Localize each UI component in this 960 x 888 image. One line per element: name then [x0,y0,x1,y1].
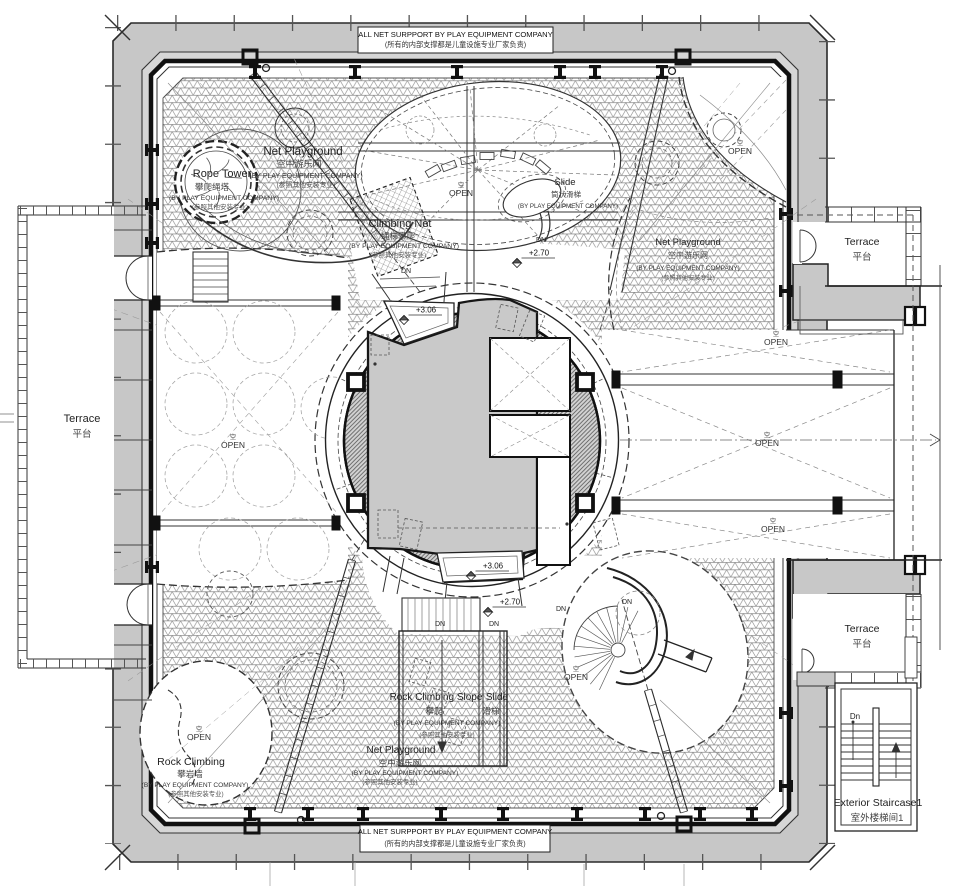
svg-text:(BY PLAY EQUIPMENT COMPANY): (BY PLAY EQUIPMENT COMPANY) [636,265,739,272]
svg-text:滑梯: 滑梯 [482,706,500,716]
svg-text:攀岩墙: 攀岩墙 [177,769,203,779]
svg-text:空中游乐网: 空中游乐网 [276,158,321,169]
svg-text:(BY PLAY EQUIPMENT COMPANY): (BY PLAY EQUIPMENT COMPANY) [349,243,459,250]
svg-text:(BY PLAY EQUIPMENT COMPANY): (BY PLAY EQUIPMENT COMPANY) [394,720,501,727]
svg-text:(参照其他安装专业): (参照其他安装专业) [277,180,336,189]
svg-text:DN: DN [489,621,499,628]
svg-text:Net Playground: Net Playground [263,146,342,158]
svg-text:(BY PLAY EQUIPMENT COMPANY): (BY PLAY EQUIPMENT COMPANY) [142,782,249,789]
svg-text:攀爬绳塔: 攀爬绳塔 [195,182,230,192]
svg-text:Net Playground: Net Playground [367,745,436,756]
svg-text:平台: 平台 [72,428,91,440]
svg-text:平台: 平台 [852,251,871,263]
svg-text:(所有的内部支撑都是儿童设施专业厂家负责): (所有的内部支撑都是儿童设施专业厂家负责) [385,40,526,49]
svg-text:OPEN: OPEN [761,524,785,534]
svg-text:DN: DN [536,237,546,244]
svg-text:Rock Climbing: Rock Climbing [157,756,225,768]
svg-text:室外楼梯间1: 室外楼梯间1 [851,812,904,824]
svg-text:OPEN: OPEN [764,337,788,347]
svg-text:DN: DN [435,621,445,628]
svg-text:ALL NET SURPPORT BY PLAY EQUIP: ALL NET SURPPORT BY PLAY EQUIPMENT COMPA… [358,827,552,836]
svg-text:(BY PLAY EQUIPMENT COMPANY): (BY PLAY EQUIPMENT COMPANY) [169,195,279,202]
svg-text:DN: DN [622,599,632,606]
svg-text:Net Playground: Net Playground [655,237,720,248]
svg-text:Terrace: Terrace [844,623,879,635]
svg-text:(参照其他安装专业): (参照其他安装专业) [661,274,715,282]
svg-text:Climbing Net: Climbing Net [369,218,432,230]
svg-text:平台: 平台 [852,638,871,650]
svg-text:绳梯攀爬: 绳梯攀爬 [381,231,416,241]
svg-text:(BY PLAY EQUIPMENT COMPANY): (BY PLAY EQUIPMENT COMPANY) [518,203,618,210]
svg-text:(参照其他安装专业): (参照其他安装专业) [168,789,223,798]
svg-text:(参照其他安装专业): (参照其他安装专业) [370,250,426,259]
svg-text:+3.06: +3.06 [483,562,504,571]
svg-text:Rock Climbing Slope: Rock Climbing Slope [390,692,483,703]
svg-text:Rope Tower: Rope Tower [193,168,252,180]
svg-text:(BY PLAY EQUIPMENT COMPANY): (BY PLAY EQUIPMENT COMPANY) [352,770,459,777]
svg-text:OPEN: OPEN [221,440,245,450]
svg-text:Slide: Slide [554,177,575,188]
svg-text:Dn: Dn [850,712,860,721]
svg-text:筒状滑梯: 筒状滑梯 [551,189,581,199]
svg-text:+2.70: +2.70 [500,598,521,607]
svg-text:Terrace: Terrace [64,413,101,425]
svg-text:+2.70: +2.70 [529,249,550,258]
svg-text:空中游乐网: 空中游乐网 [668,250,708,260]
svg-text:OPEN: OPEN [728,146,752,156]
svg-text:OPEN: OPEN [564,672,588,682]
svg-text:(参照其他安装专业): (参照其他安装专业) [419,730,474,739]
svg-text:Exterior Staircase1: Exterior Staircase1 [834,797,923,809]
svg-text:(所有的内部支撑都是儿童设施专业厂家负责): (所有的内部支撑都是儿童设施专业厂家负责) [384,839,525,848]
svg-text:+3.06: +3.06 [416,306,437,315]
svg-text:ALL NET SURPPORT BY PLAY EQUIP: ALL NET SURPPORT BY PLAY EQUIPMENT COMPA… [358,30,552,39]
svg-text:OPEN: OPEN [187,732,211,742]
svg-text:(参照其他安装专业): (参照其他安装专业) [192,202,248,211]
svg-text:攀爬: 攀爬 [425,706,443,716]
svg-text:DN: DN [556,606,566,613]
svg-text:DN: DN [401,268,411,275]
svg-text:Slide: Slide [486,692,509,703]
svg-text:(BY PLAY EQUIPMENT COMPANY): (BY PLAY EQUIPMENT COMPANY) [249,173,362,180]
svg-text:Terrace: Terrace [844,236,879,248]
svg-text:OPEN: OPEN [755,438,779,448]
svg-text:OPEN: OPEN [449,188,473,198]
svg-text:(参照其他安装专业): (参照其他安装专业) [362,777,417,786]
svg-text:空中游乐网: 空中游乐网 [379,758,422,768]
